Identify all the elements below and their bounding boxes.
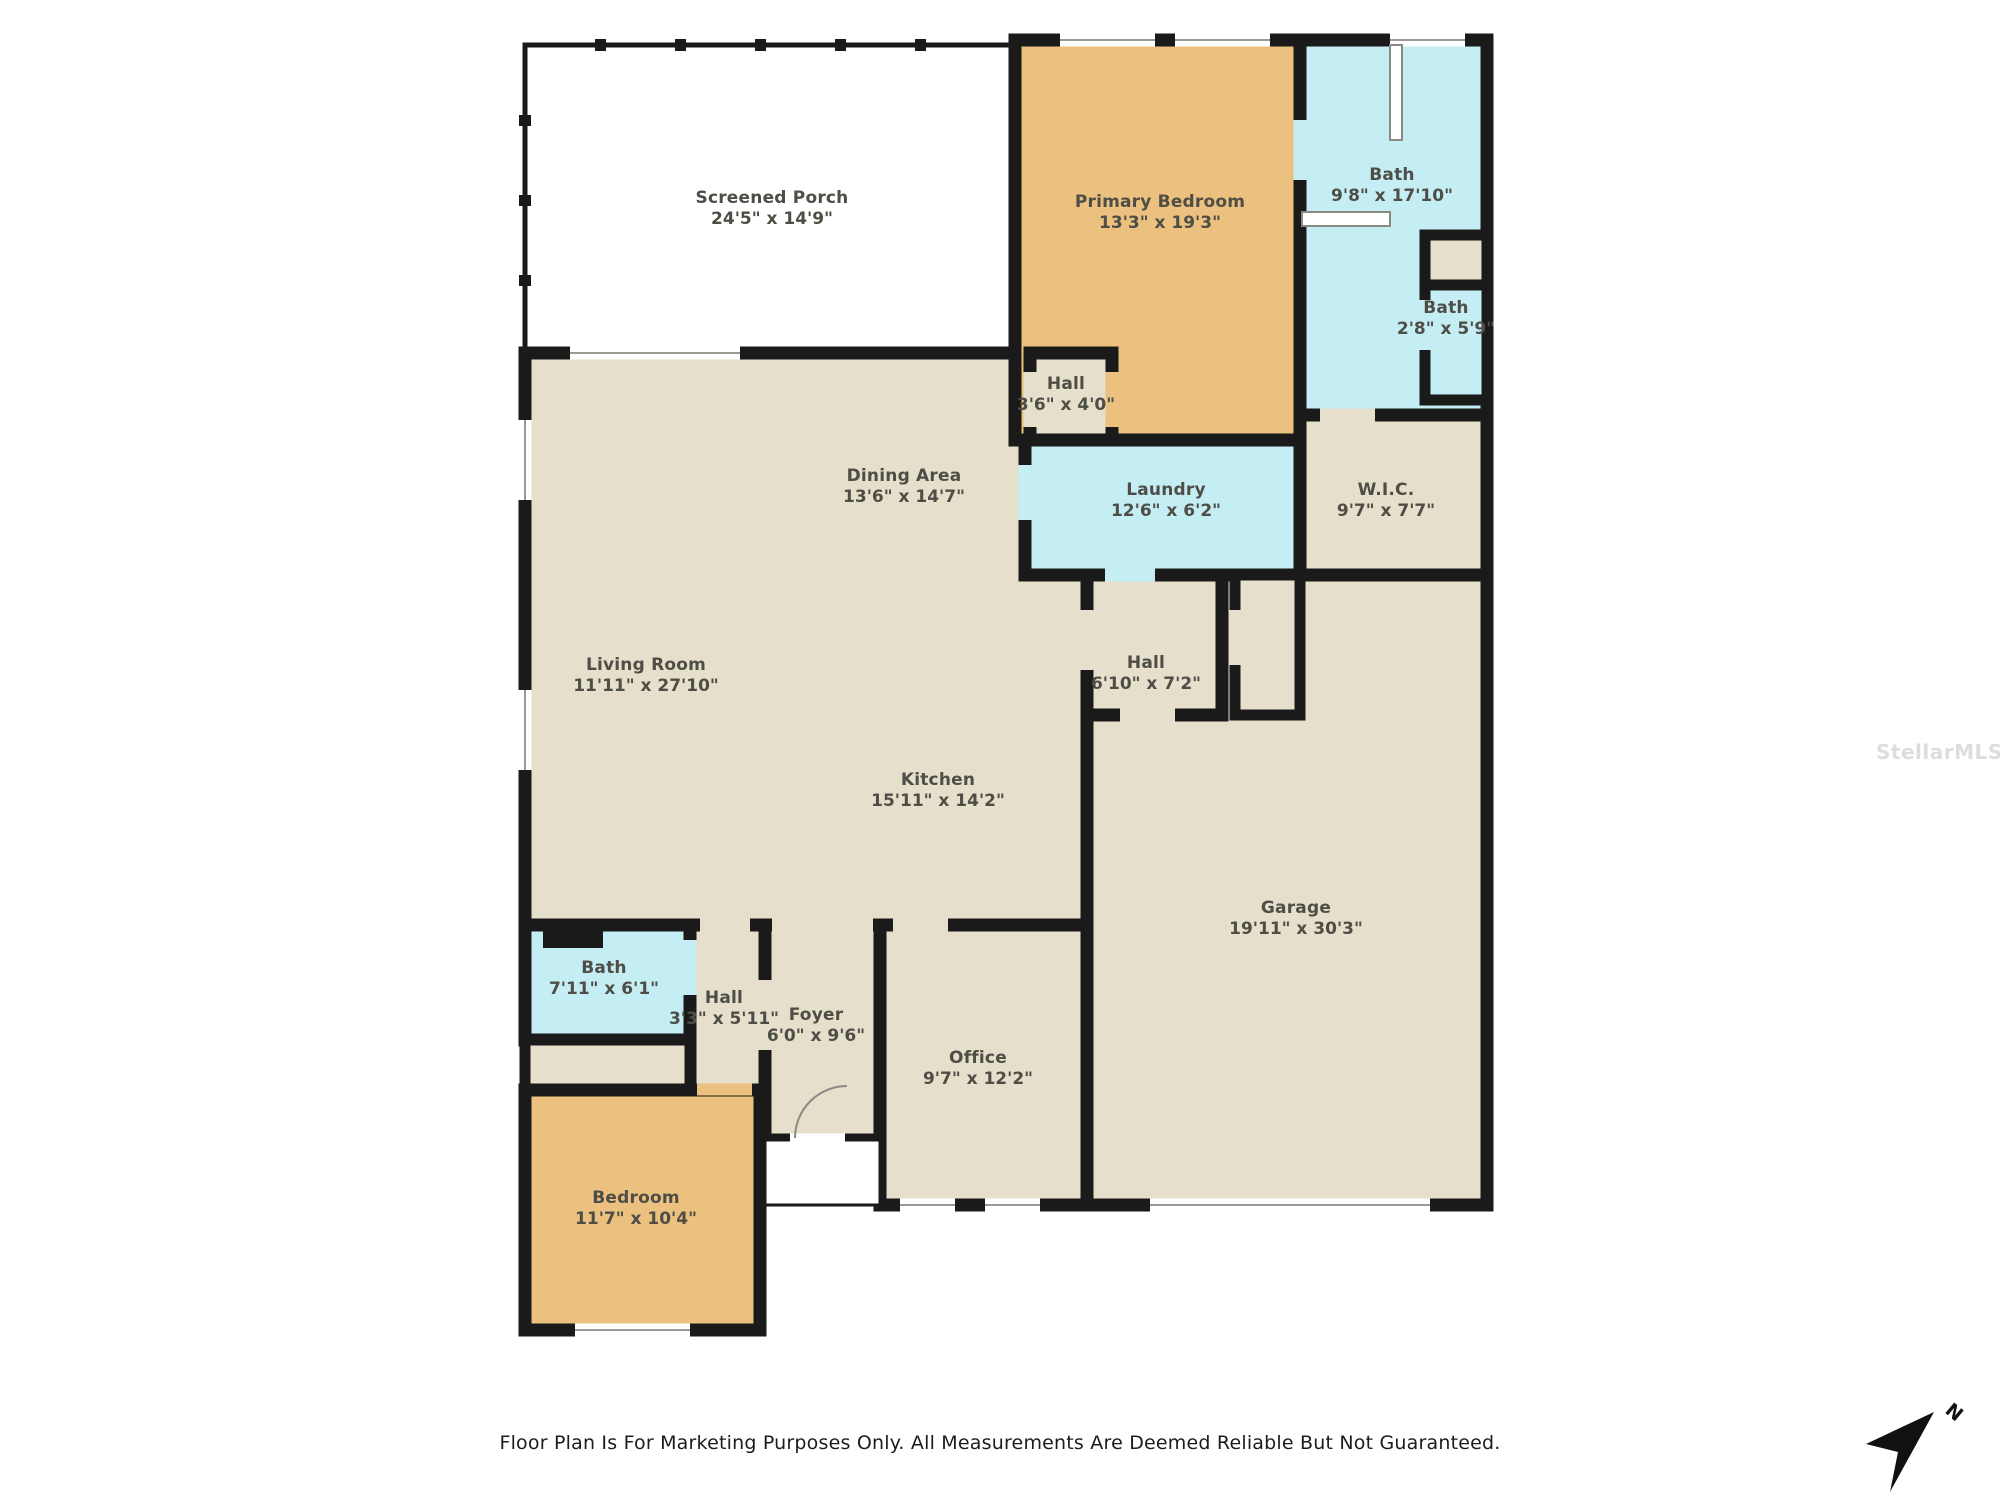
room-shape-hall-center — [1087, 575, 1222, 715]
floor-plan-drawing: N — [0, 0, 2000, 1500]
room-shape-open-space — [525, 353, 1087, 925]
room-shape-closet-strip — [525, 1040, 690, 1090]
room-shape-wic — [1300, 415, 1487, 575]
room-shape-foyer — [765, 925, 880, 1140]
room-shape-office — [880, 925, 1087, 1205]
garage-door — [1150, 1199, 1430, 1212]
room-shape-linen-closet — [1425, 235, 1487, 285]
room-shape-hall-foyer — [690, 925, 765, 1090]
room-shape-hall-closet — [1235, 575, 1300, 715]
entry-nook — [765, 1140, 880, 1205]
room-shape-screened-porch — [525, 45, 1015, 353]
room-shape-small-bath — [1425, 285, 1487, 400]
stellar-mls-watermark: StellarMLS — [1876, 740, 2000, 764]
floor-plan-page: N Screened Porch24'5" x 14'9" Primary Be… — [0, 0, 2000, 1500]
room-shape-hall-primary — [1030, 353, 1112, 440]
room-shape-laundry — [1025, 440, 1300, 575]
disclaimer-text: Floor Plan Is For Marketing Purposes Onl… — [0, 1432, 2000, 1454]
room-shape-bedroom — [525, 1090, 760, 1330]
compass-n-label: N — [1941, 1399, 1967, 1426]
wall-bump — [543, 922, 603, 948]
